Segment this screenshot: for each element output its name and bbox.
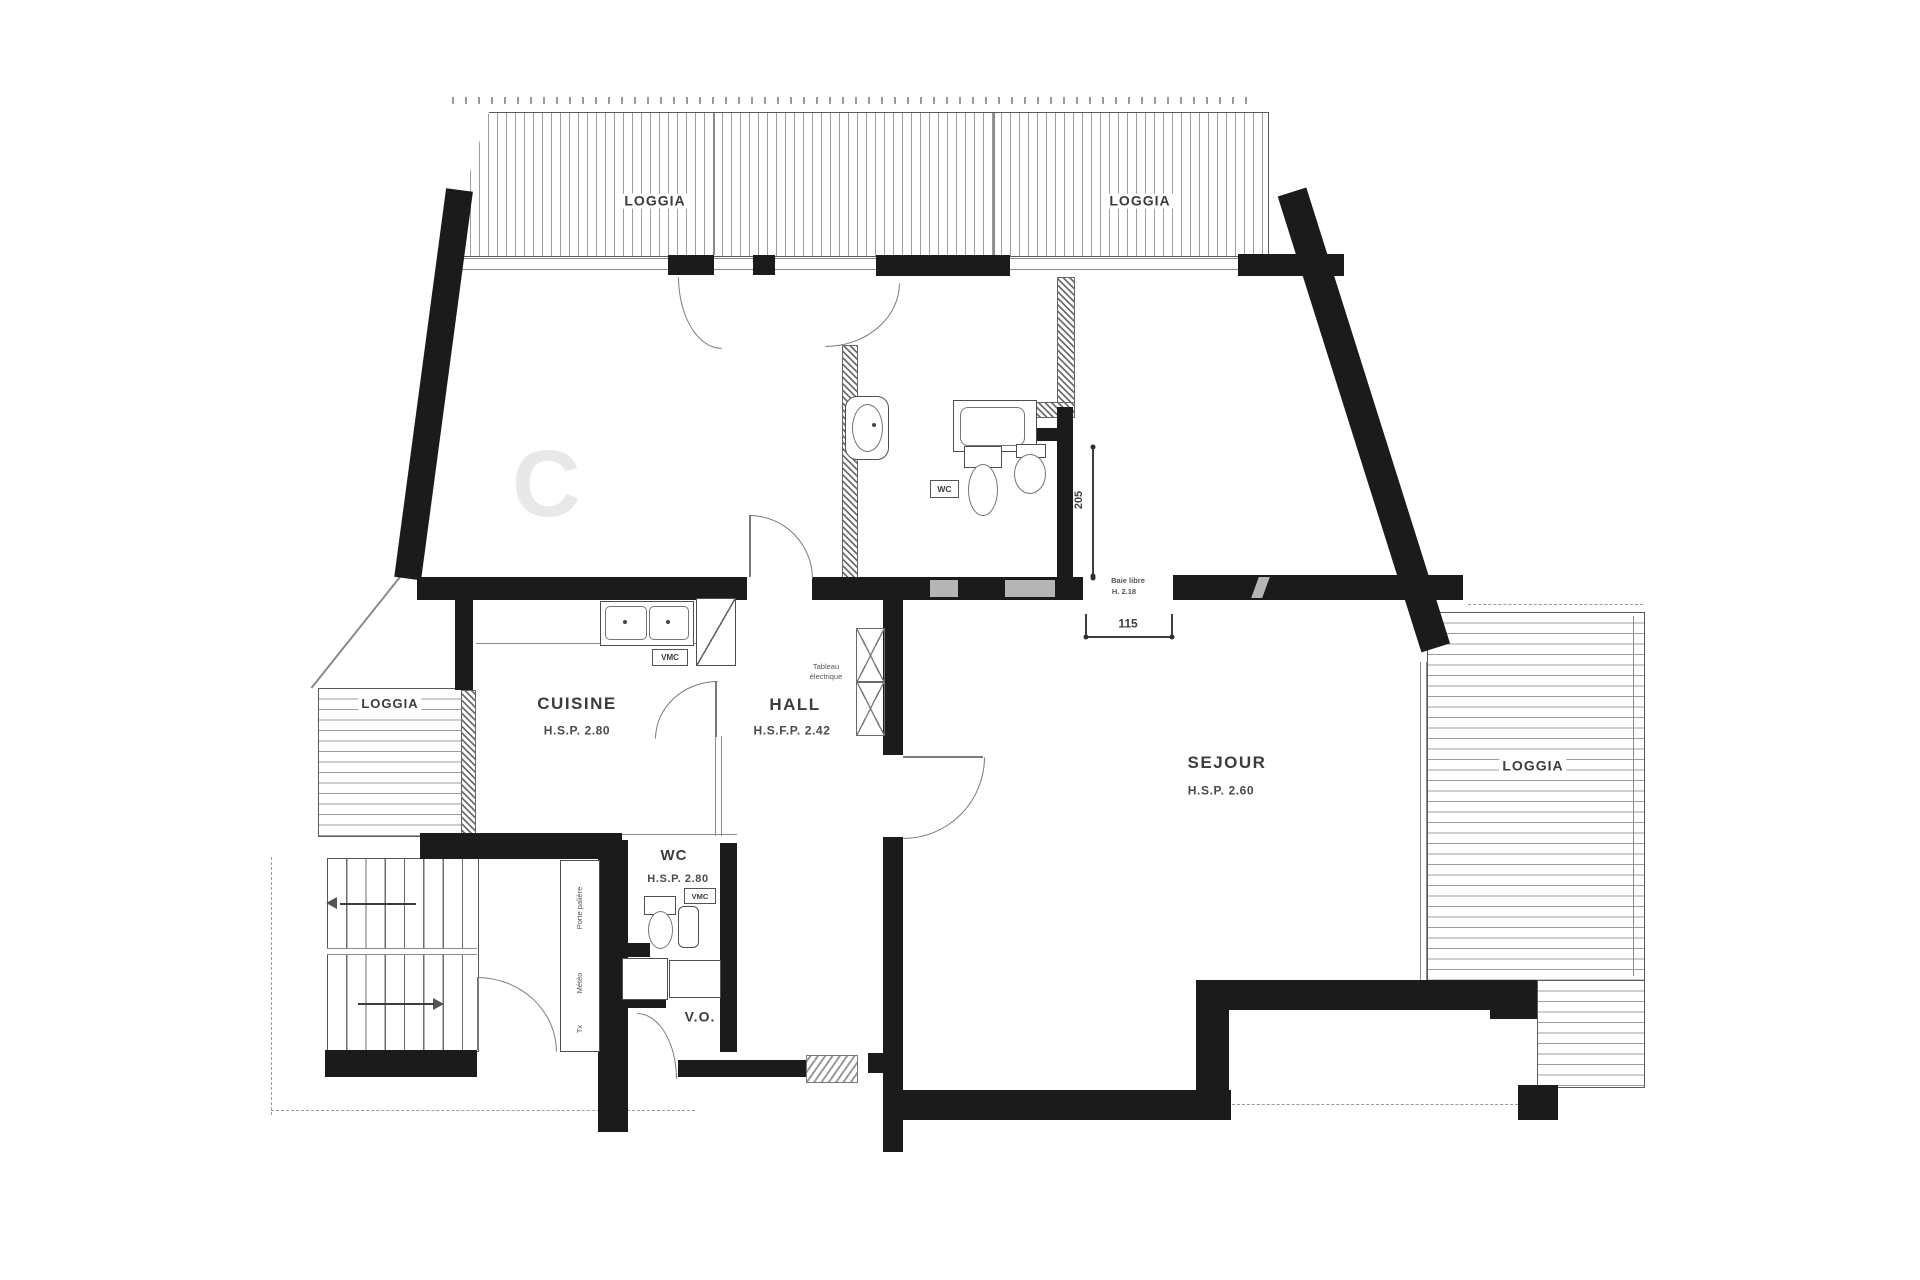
cuisine-label: CUISINE: [534, 695, 619, 713]
kitchen-faucet-1: [623, 620, 627, 624]
dim-205-line: [1092, 446, 1094, 576]
hall-closet-lower: [856, 681, 885, 736]
west-dashed-boundary: [271, 857, 272, 1115]
wc-north-line: [622, 834, 737, 835]
dim-205-dot-top: [1091, 445, 1096, 450]
cuisine-door-arc: [655, 681, 718, 739]
cuisine-ceiling: H.S.P. 2.80: [541, 725, 613, 738]
baie-dot: [1091, 576, 1096, 581]
loggia-east-label: LOGGIA: [1499, 759, 1566, 774]
bathroom-sink-bowl: [852, 404, 883, 452]
sejour-door-arc: [903, 757, 985, 839]
kitchen-appliance: [696, 598, 736, 666]
top-tick-line: [452, 97, 1252, 104]
tableau-electrique-line1: Tableau: [810, 663, 842, 671]
sejour-door-leaf: [903, 756, 983, 758]
main-wall-window-2: [1005, 580, 1055, 597]
south-hatched-threshold: [806, 1055, 858, 1083]
stair-arrow-up-head: [326, 897, 337, 909]
sejour-label: SEJOUR: [1185, 754, 1270, 772]
main-wall-west: [417, 577, 747, 600]
top-loggia-band: [443, 112, 1269, 257]
east-loggia-dashed-edge: [1468, 604, 1643, 605]
north-pier-1: [668, 255, 714, 275]
south-dashed-line-west: [271, 1110, 695, 1111]
hall-closet-upper: [856, 628, 885, 683]
stair-arrow-up-line: [340, 903, 416, 905]
hall-ceiling: H.S.F.P. 2.42: [751, 725, 834, 738]
wc-door-nub-top: [627, 943, 650, 957]
loggia-divider-2: [993, 113, 995, 255]
vmc-kitchen-tag: VMC: [652, 649, 688, 666]
east-loggia: [1427, 612, 1645, 982]
wc-east-wall: [720, 843, 737, 1052]
bathroom-sink-faucet: [872, 423, 876, 427]
cupboard-2: [669, 960, 721, 998]
west-diagonal-line: [311, 576, 401, 688]
sejour-south-step: [1490, 1010, 1537, 1019]
east-loggia-rail: [1633, 616, 1634, 976]
kitchen-faucet-2: [666, 620, 670, 624]
stair-arrow-down-head: [433, 998, 444, 1010]
baie-height: H. 2.18: [1109, 588, 1139, 596]
sejour-south-wall-east: [1196, 980, 1537, 1010]
dim-115-dot-left: [1084, 635, 1089, 640]
wc-sink: [678, 906, 699, 948]
sejour-north-wall: [1173, 575, 1463, 600]
staircase: [327, 858, 479, 1052]
bathtub-basin: [960, 407, 1025, 446]
cuisine-window-strip: [461, 690, 476, 837]
toilet-bowl: [968, 464, 998, 516]
loggia-west-label: LOGGIA: [358, 697, 421, 711]
loggia-door-arc: [678, 277, 722, 349]
sejour-south-connector: [1196, 1010, 1229, 1094]
loggia-divider-1: [713, 113, 715, 255]
closet-label-top: Porte palière: [573, 887, 587, 930]
west-diagonal-wall: [394, 188, 473, 580]
bathroom-east-wall-upper: [1057, 277, 1075, 409]
wc-ceiling: H.S.P. 2.80: [644, 874, 711, 886]
sejour-east-window-wall: [1420, 662, 1427, 980]
sejour-west-wall-lower: [883, 837, 903, 1152]
entrance-door-arc: [477, 977, 557, 1052]
dim-115-line: [1085, 636, 1173, 638]
north-pier-3: [876, 255, 1010, 276]
cuisine-door-leaf: [715, 681, 717, 737]
loggia-top-left-label: LOGGIA: [621, 194, 688, 209]
floor-plan: C LOGGIA LOGGIA WC 205 Baie libre H.: [0, 0, 1920, 1280]
dim-115-tick-left: [1085, 614, 1087, 636]
bedroom-door-arc: [749, 515, 813, 579]
loggia-top-right-label: LOGGIA: [1106, 194, 1173, 209]
entry-south-wall: [325, 1050, 477, 1077]
sejour-south-wall-west: [903, 1090, 1231, 1120]
dim-115-dot-right: [1170, 635, 1175, 640]
southeast-wall-block: [1518, 1085, 1558, 1120]
vo-door-arc: [637, 1013, 677, 1079]
sejour-west-wall-upper: [883, 577, 903, 755]
south-dashed-line-east: [1232, 1104, 1518, 1105]
dim-115-tick-right: [1171, 614, 1173, 636]
closet-label-mid: Météo: [573, 973, 587, 994]
north-pier-2: [753, 255, 775, 275]
stair-landing-line: [327, 948, 477, 955]
wc-fixture-tag: WC: [930, 480, 959, 498]
stair-arrow-down-line: [358, 1003, 434, 1005]
entrance-door-leaf: [477, 977, 479, 1050]
bidet-bowl: [1014, 454, 1046, 494]
dim-205-label: 205: [1071, 491, 1089, 509]
dim-115-label: 115: [1115, 618, 1140, 631]
bedroom-door-leaf: [749, 515, 751, 577]
vo-label: V.O.: [682, 1010, 719, 1025]
wc-label: WC: [658, 848, 691, 864]
east-loggia-extension: [1537, 980, 1645, 1088]
tableau-electrique-line2: électrique: [807, 673, 846, 681]
cupboard-1: [622, 958, 668, 1000]
bathroom-door-arc: [825, 283, 900, 347]
sejour-ceiling: H.S.P. 2.60: [1185, 785, 1257, 798]
main-wall-window-1: [930, 580, 958, 597]
closet-label-bottom: Tx: [573, 1025, 587, 1033]
vmc-wc-tag: VMC: [684, 888, 716, 904]
wc-toilet-bowl: [648, 911, 673, 949]
watermark: C: [512, 430, 581, 539]
vo-south-wall: [678, 1060, 814, 1077]
south-wall-nub: [868, 1053, 890, 1073]
cuisine-west-wall: [455, 600, 473, 690]
hall-label: HALL: [766, 696, 823, 714]
baie-label: Baie libre: [1108, 577, 1148, 585]
bathroom-west-wall: [842, 345, 858, 579]
cuisine-hall-partition: [715, 736, 722, 836]
entry-north-wall: [420, 833, 622, 859]
